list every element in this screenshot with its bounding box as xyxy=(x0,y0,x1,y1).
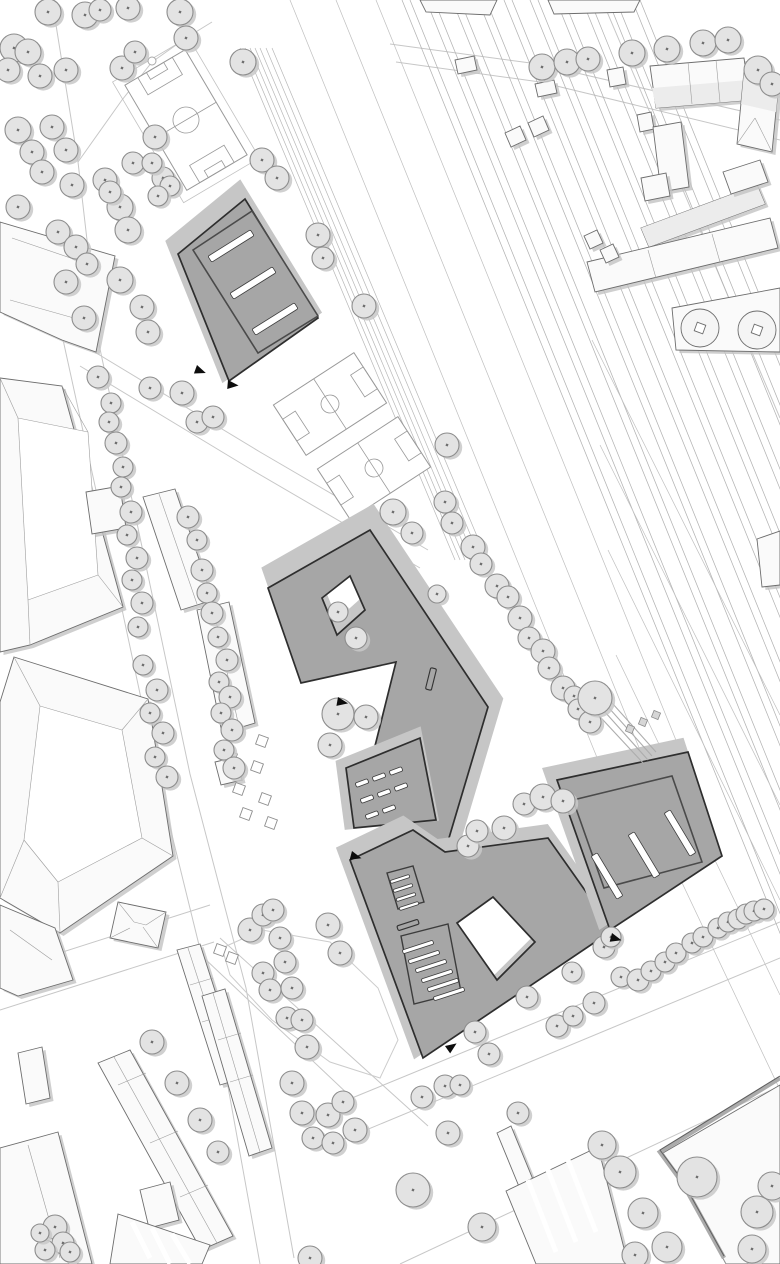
rail-line xyxy=(410,0,780,1264)
site-plan-viewport xyxy=(0,0,780,1264)
site-plan-canvas xyxy=(0,0,780,1264)
shed-ind-2 xyxy=(637,112,654,132)
shed-ind-1 xyxy=(607,67,626,87)
platform-element xyxy=(638,717,647,726)
planter xyxy=(214,944,227,957)
planter xyxy=(240,808,253,821)
roof-face xyxy=(18,418,98,600)
planter xyxy=(251,761,264,774)
platform-building xyxy=(757,531,780,587)
tree xyxy=(622,1242,648,1264)
planter xyxy=(259,793,272,806)
tree xyxy=(0,58,20,82)
bar-ne xyxy=(723,160,768,194)
entrance-arrow xyxy=(194,365,207,377)
entrance-arrow xyxy=(227,380,239,390)
tree xyxy=(298,1246,322,1264)
planter xyxy=(256,735,269,748)
platform-element xyxy=(651,710,660,719)
tree xyxy=(758,1172,780,1200)
cut-building-top-2 xyxy=(548,0,640,14)
path-node xyxy=(148,57,156,65)
planter xyxy=(265,817,278,830)
tree xyxy=(760,72,780,96)
tree xyxy=(116,0,140,20)
shed-ind-3 xyxy=(641,173,670,201)
